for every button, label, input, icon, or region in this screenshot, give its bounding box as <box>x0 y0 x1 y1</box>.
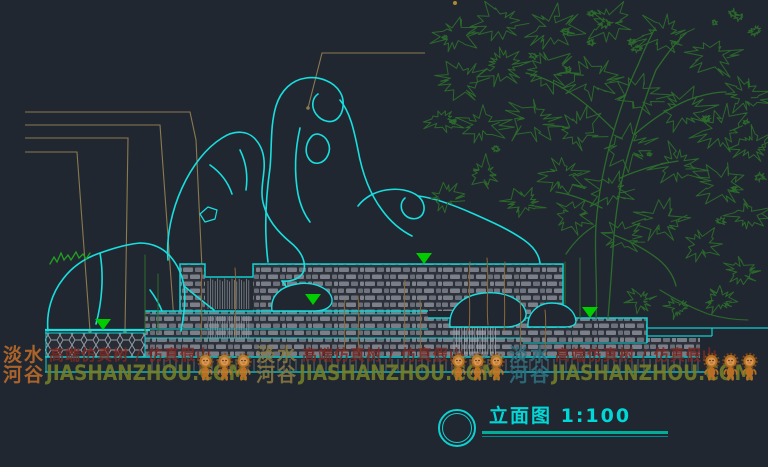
cad-canvas: 淡水 河谷 高端仿真树 / 仿真假山 JIASHANZHOU.COM 淡水 河谷… <box>0 0 768 467</box>
drawing-title: 立面图 1:100 <box>489 401 631 428</box>
water-level-marker-icon <box>95 319 111 330</box>
title-underline-thick <box>482 431 668 434</box>
wall-masonry <box>45 264 768 372</box>
elevation-linework <box>0 0 768 467</box>
water-level-marker-icon <box>416 253 432 264</box>
section-marker-circle <box>438 409 476 447</box>
title-underline-thin <box>482 436 668 437</box>
